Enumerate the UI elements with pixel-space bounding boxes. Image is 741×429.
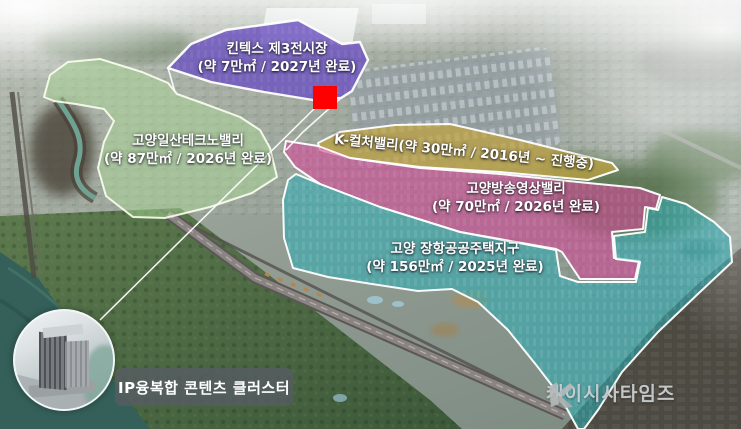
ip-cluster-inset-photo	[13, 309, 115, 411]
zone-detail: (약 87만㎡ / 2026년 완료)	[104, 150, 272, 168]
press-watermark: 케이시사타임즈	[546, 379, 675, 406]
zone-name: 고양 장항공공주택지구	[366, 240, 543, 258]
zone-detail: (약 7만㎡ / 2027년 완료)	[198, 58, 357, 76]
aerial-development-map: 킨텍스 제3전시장 (약 7만㎡ / 2027년 완료) 고양일산테크노밸리 (…	[0, 0, 741, 429]
ip-cluster-label-text: IP융복합 콘텐츠 클러스터	[118, 377, 290, 398]
inset-building-tower-left	[39, 332, 67, 390]
zone-name: 고양일산테크노밸리	[104, 132, 272, 150]
zone-label-techno: 고양일산테크노밸리 (약 87만㎡ / 2026년 완료)	[104, 132, 272, 168]
zone-detail: (약 156만㎡ / 2025년 완료)	[366, 258, 543, 276]
inset-building-tower-right	[65, 340, 89, 387]
inset-building-roof	[43, 324, 84, 338]
zone-name: 고양방송영상밸리	[432, 180, 600, 198]
watermark-k-icon	[546, 379, 576, 409]
zone-label-broadcast: 고양방송영상밸리 (약 70만㎡ / 2026년 완료)	[432, 180, 600, 216]
ip-cluster-site-marker	[313, 86, 337, 109]
zone-label-janghang: 고양 장항공공주택지구 (약 156만㎡ / 2025년 완료)	[366, 240, 543, 276]
zone-label-kintex: 킨텍스 제3전시장 (약 7만㎡ / 2027년 완료)	[198, 40, 357, 76]
zone-detail: (약 70만㎡ / 2026년 완료)	[432, 198, 600, 216]
ip-cluster-label: IP융복합 콘텐츠 클러스터	[115, 368, 293, 406]
zone-name: 킨텍스 제3전시장	[198, 40, 357, 58]
